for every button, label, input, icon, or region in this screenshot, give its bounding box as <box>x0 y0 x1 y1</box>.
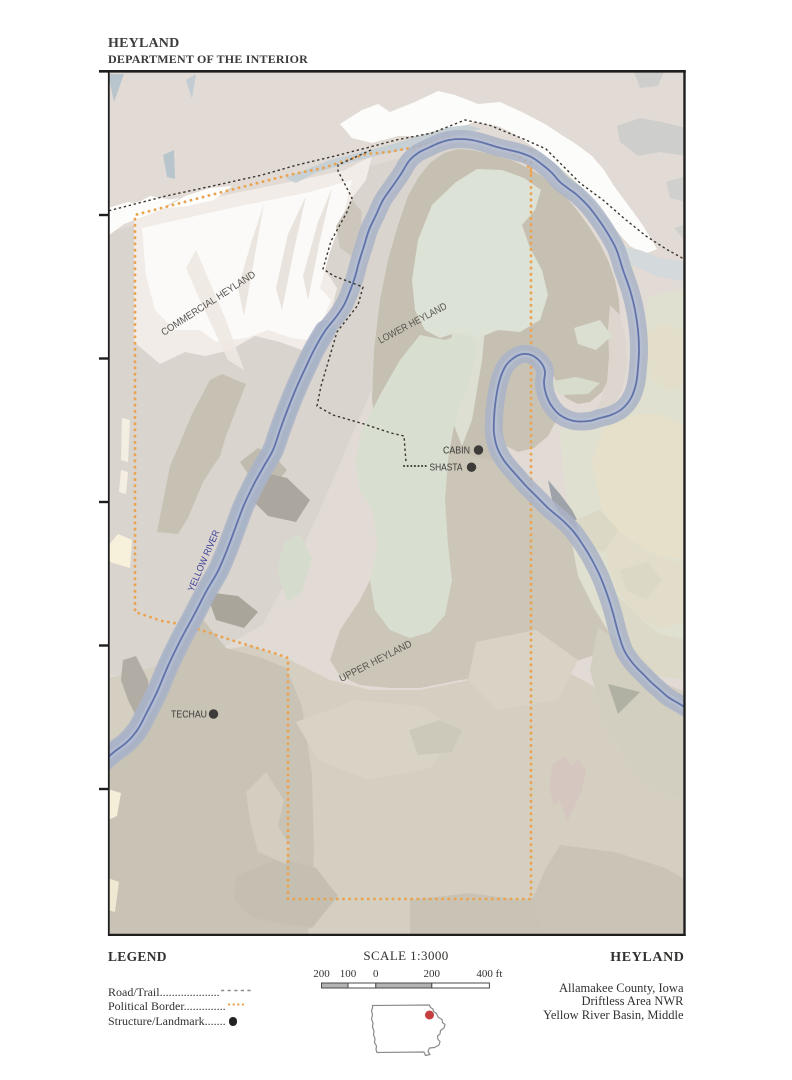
svg-text:400 ft: 400 ft <box>476 968 502 980</box>
svg-text:200: 200 <box>313 968 330 980</box>
svg-text:CABIN: CABIN <box>443 445 470 457</box>
svg-text:0: 0 <box>373 968 379 980</box>
svg-text:SHASTA: SHASTA <box>430 461 463 473</box>
svg-text:200: 200 <box>424 968 441 980</box>
svg-text:100: 100 <box>340 968 357 980</box>
svg-text:TECHAU: TECHAU <box>171 708 207 720</box>
